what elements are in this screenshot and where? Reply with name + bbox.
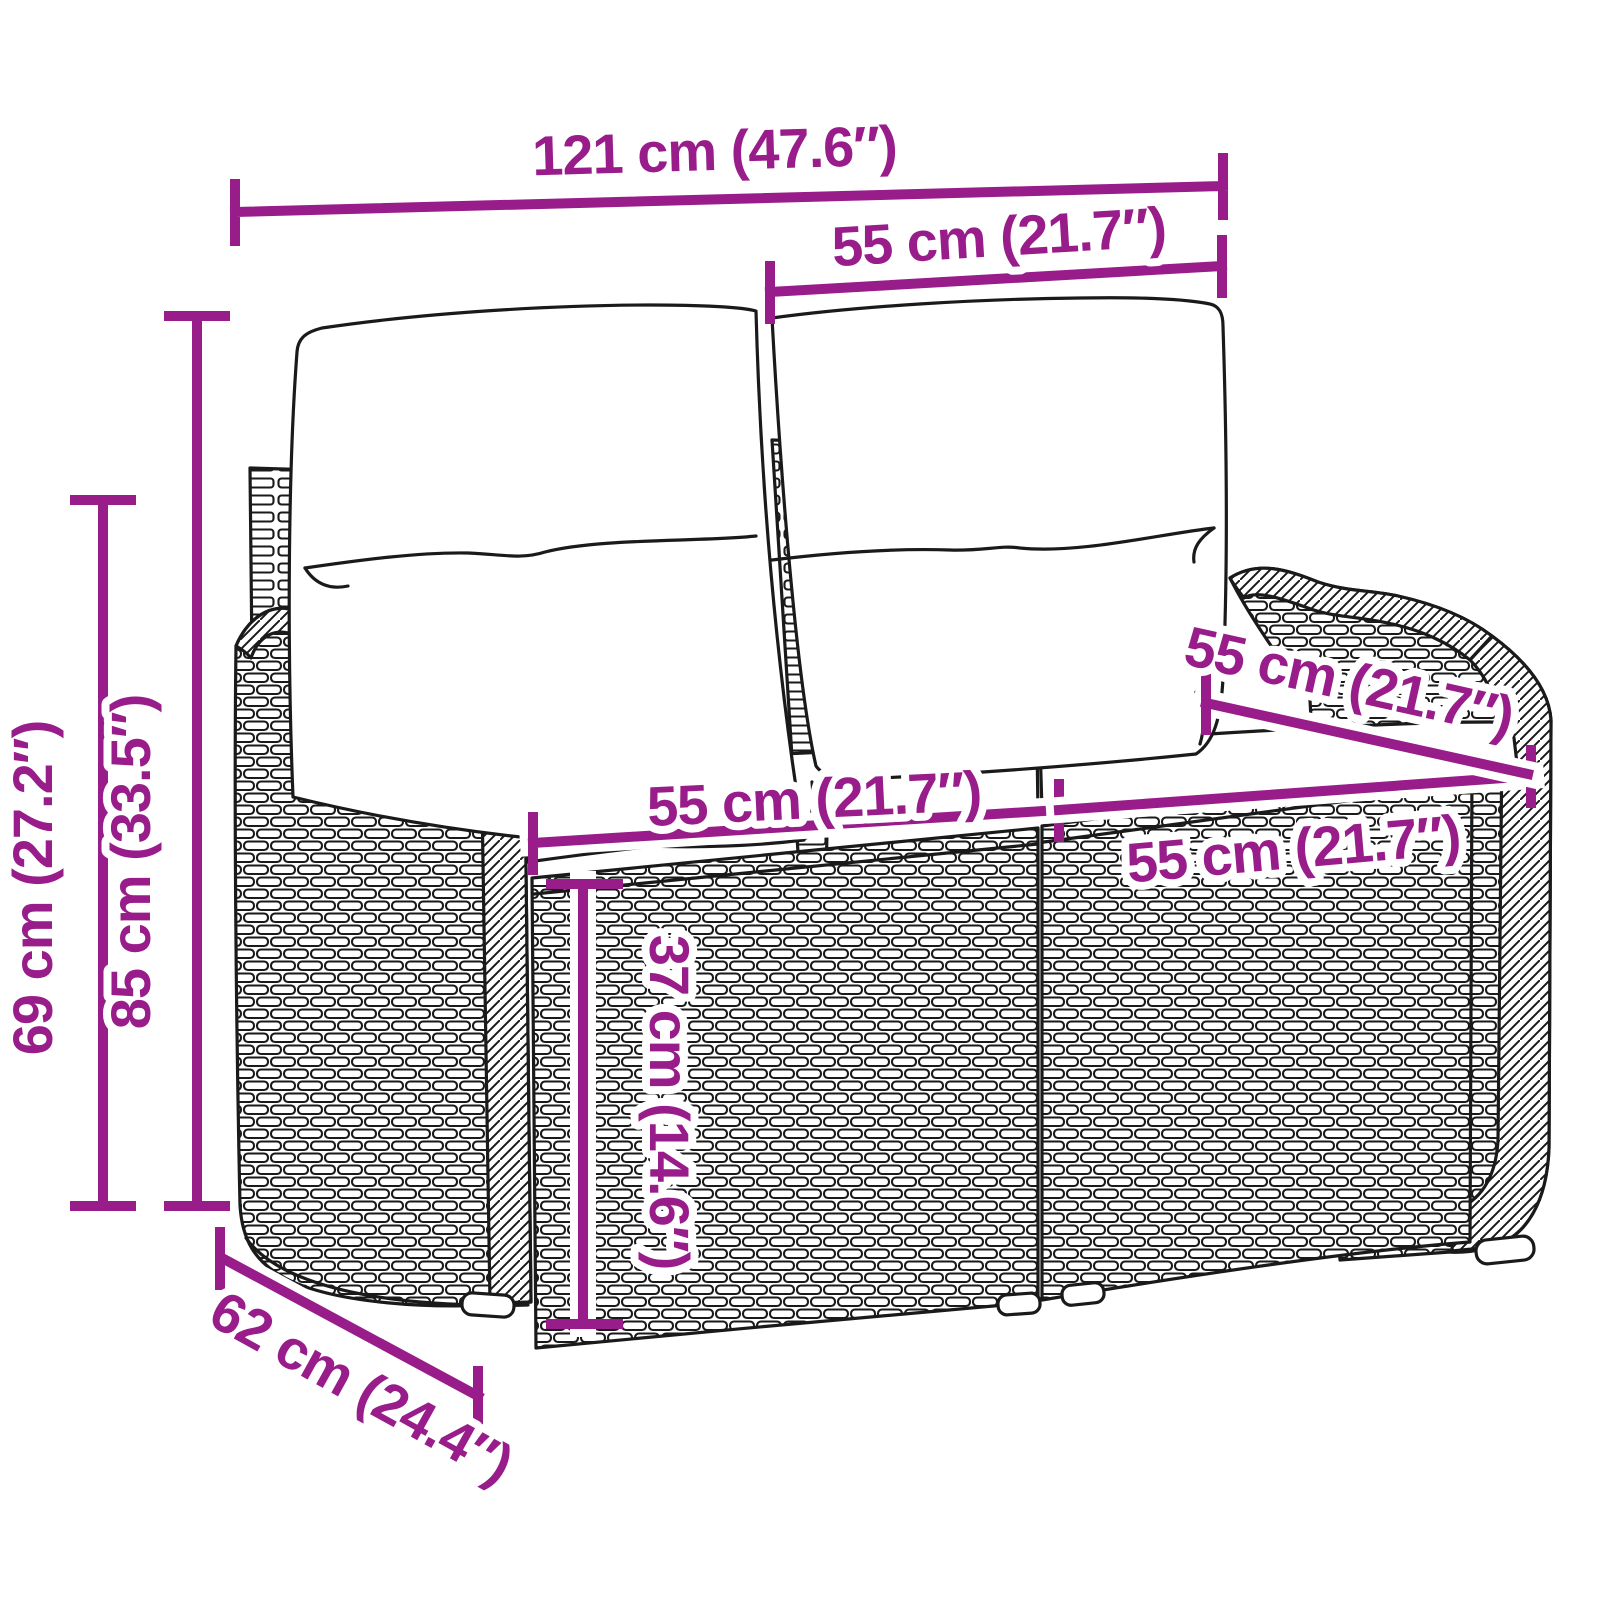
foot-center-left [997,1293,1040,1316]
foot-center-right [1061,1282,1105,1306]
total-height-label: 85 cm (33.5″) [99,695,162,1029]
foot-right [1475,1235,1535,1265]
front-panel-left [532,828,1038,1348]
foot-left [461,1292,514,1318]
garden-bench-diagram: 121 cm (47.6″) 55 cm (21.7″) 69 cm (27.2… [0,0,1600,1600]
dim-total-height: 85 cm (33.5″) [99,316,225,1206]
overall-width-label: 121 cm (47.6″) [531,114,897,188]
seat-height-label: 37 cm (14.6″) [638,935,701,1269]
dimension-diagram-canvas: 121 cm (47.6″) 55 cm (21.7″) 69 cm (27.2… [0,0,1600,1600]
back-cushion-left [289,305,804,847]
armrest-height-label: 69 cm (27.2″) [1,721,64,1055]
back-cushion-right [772,298,1226,779]
